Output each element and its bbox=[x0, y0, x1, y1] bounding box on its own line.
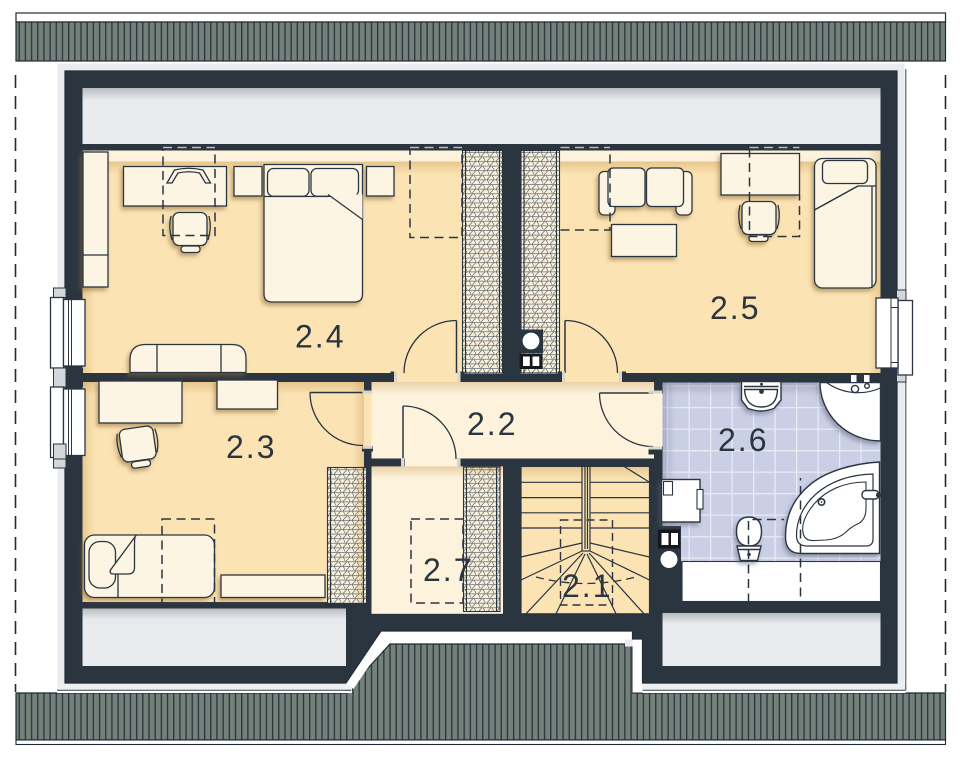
svg-text:2.5: 2.5 bbox=[710, 290, 760, 326]
svg-text:2.2: 2.2 bbox=[467, 406, 517, 442]
svg-text:2.3: 2.3 bbox=[226, 429, 276, 465]
svg-text:2.7: 2.7 bbox=[423, 552, 473, 588]
svg-text:2.1: 2.1 bbox=[562, 568, 612, 604]
svg-text:2.4: 2.4 bbox=[295, 319, 345, 355]
svg-text:2.6: 2.6 bbox=[718, 422, 768, 458]
